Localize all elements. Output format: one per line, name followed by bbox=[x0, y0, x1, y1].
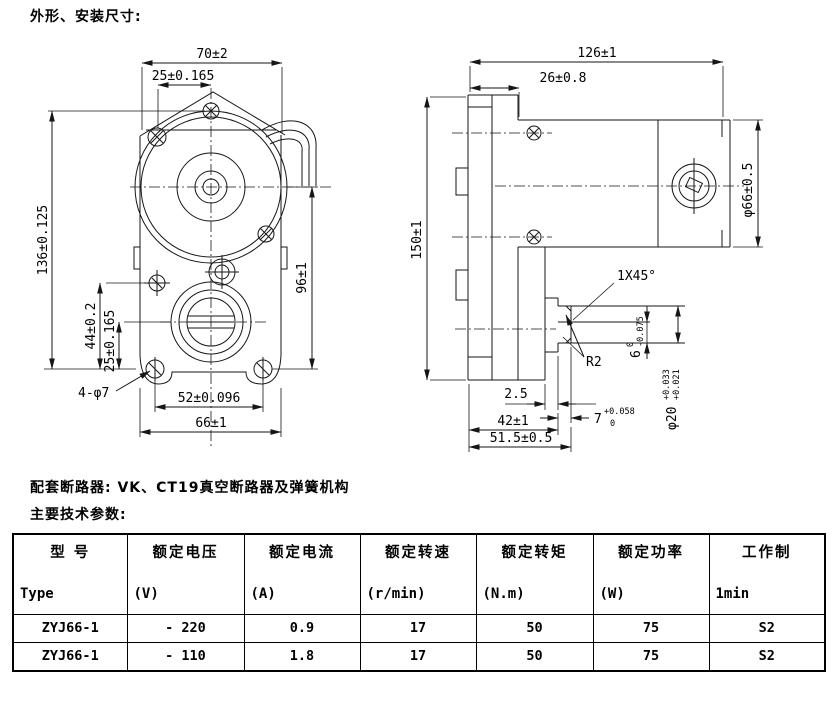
header-voltage: 额定电压 (V) bbox=[127, 534, 244, 615]
header-current-cn: 额定电流 bbox=[245, 535, 360, 562]
row2-current: 1.8 bbox=[244, 643, 360, 672]
dim-height-overall-side: 150±1 bbox=[410, 220, 425, 259]
row1-power: 75 bbox=[593, 615, 709, 643]
dim-key-width-tol-lower: 0 bbox=[610, 419, 615, 429]
dim-total-length: 51.5±0.5 bbox=[490, 431, 553, 446]
dim-key-height-group: 6 0 -0.075 bbox=[626, 316, 646, 358]
row2-torque: 50 bbox=[476, 643, 593, 672]
dim-key-height: 6 bbox=[629, 350, 644, 358]
dim-length-overall: 126±1 bbox=[577, 46, 616, 61]
dim-flange-thickness: 26±0.8 bbox=[540, 71, 587, 86]
dim-height-overall-front: 136±0.125 bbox=[36, 205, 51, 275]
side-view-drawing: 126±1 26±0.8 150±1 φ66±0.5 1X45° R2 bbox=[410, 46, 763, 452]
row2-voltage: - 110 bbox=[127, 643, 244, 672]
row1-current: 0.9 bbox=[244, 615, 360, 643]
header-type: 型 号 Type bbox=[13, 534, 127, 615]
dim-step: 2.5 bbox=[504, 387, 527, 402]
row1-speed: 17 bbox=[360, 615, 476, 643]
row2-duty: S2 bbox=[709, 643, 825, 672]
header-power-cn: 额定功率 bbox=[594, 535, 709, 562]
side-centerlines bbox=[452, 133, 744, 329]
front-dimensions: 70±2 25±0.165 136±0.125 96±1 44±0.2 25±0… bbox=[36, 47, 318, 437]
header-power: 额定功率 (W) bbox=[593, 534, 709, 615]
breaker-note: 配套断路器: VK、CT19真空断路器及弹簧机构 bbox=[30, 477, 349, 497]
drawing-sheet: 外形、安装尺寸: bbox=[0, 0, 837, 710]
header-duty: 工作制 1min bbox=[709, 534, 825, 615]
dim-body-diameter: φ66±0.5 bbox=[741, 163, 756, 218]
header-duty-cn: 工作制 bbox=[710, 535, 825, 562]
front-view-drawing: 70±2 25±0.165 136±0.125 96±1 44±0.2 25±0… bbox=[36, 47, 332, 448]
header-current: 额定电流 (A) bbox=[244, 534, 360, 615]
header-speed-en: (r/min) bbox=[361, 562, 476, 614]
row1-type: ZYJ66-1 bbox=[13, 615, 127, 643]
header-voltage-cn: 额定电压 bbox=[128, 535, 244, 562]
dim-shaft-tol-lower: +0.021 bbox=[672, 369, 682, 400]
label-chamfer: 1X45° bbox=[617, 269, 656, 284]
params-label: 主要技术参数: bbox=[30, 504, 127, 524]
row1-duty: S2 bbox=[709, 615, 825, 643]
lead-wires bbox=[262, 121, 316, 186]
header-speed: 额定转速 (r/min) bbox=[360, 534, 476, 615]
dim-width-bottom: 66±1 bbox=[195, 416, 226, 431]
header-type-cn: 型 号 bbox=[14, 535, 127, 562]
page-title: 外形、安装尺寸: bbox=[30, 6, 142, 26]
mounting-plate-side bbox=[456, 95, 545, 380]
dim-hole-pitch-bottom: 52±0.096 bbox=[178, 391, 241, 406]
dim-key-width-tol-upper: +0.058 bbox=[604, 407, 635, 417]
header-voltage-en: (V) bbox=[128, 562, 244, 614]
dim-width-top: 70±2 bbox=[196, 47, 227, 62]
header-torque-cn: 额定转矩 bbox=[477, 535, 593, 562]
dim-shaft-diameter-group: φ20 +0.033 +0.021 bbox=[662, 369, 682, 430]
header-torque-en: (N.m) bbox=[477, 562, 593, 614]
row2-speed: 17 bbox=[360, 643, 476, 672]
header-duty-en: 1min bbox=[710, 562, 825, 614]
table-row: ZYJ66-1 - 220 0.9 17 50 75 S2 bbox=[13, 615, 825, 643]
dim-hole-pitch-top: 25±0.165 bbox=[152, 69, 215, 84]
header-torque: 额定转矩 (N.m) bbox=[476, 534, 593, 615]
row1-torque: 50 bbox=[476, 615, 593, 643]
header-speed-cn: 额定转速 bbox=[361, 535, 476, 562]
label-mount-holes: 4-φ7 bbox=[78, 386, 109, 401]
dim-shaft-tol-upper: +0.033 bbox=[662, 369, 672, 400]
dim-key-height-tol-upper: 0 bbox=[626, 342, 636, 347]
dim-shaft-diameter: φ20 bbox=[665, 407, 680, 430]
dimension-drawings: 70±2 25±0.165 136±0.125 96±1 44±0.2 25±0… bbox=[0, 28, 837, 468]
dim-key-width: 7 bbox=[594, 412, 602, 427]
row2-type: ZYJ66-1 bbox=[13, 643, 127, 672]
dim-height-right: 96±1 bbox=[295, 262, 310, 293]
row2-power: 75 bbox=[593, 643, 709, 672]
side-dimensions: 126±1 26±0.8 150±1 φ66±0.5 1X45° R2 bbox=[410, 46, 763, 452]
label-fillet: R2 bbox=[586, 355, 602, 370]
spec-table: 型 号 Type 额定电压 (V) 额定电流 (A) 额定转速 (r/min) … bbox=[12, 533, 826, 672]
dim-shaft-length: 42±1 bbox=[497, 414, 528, 429]
motor-body-front bbox=[134, 92, 287, 384]
header-power-en: (W) bbox=[594, 562, 709, 614]
gearbox-shaft-side bbox=[545, 247, 685, 380]
table-row: ZYJ66-1 - 110 1.8 17 50 75 S2 bbox=[13, 643, 825, 672]
header-row: 型 号 Type 额定电压 (V) 额定电流 (A) 额定转速 (r/min) … bbox=[13, 534, 825, 615]
dim-pitch-25-bottom: 25±0.165 bbox=[103, 310, 118, 373]
dim-key-height-tol-lower: -0.075 bbox=[636, 316, 646, 347]
header-current-en: (A) bbox=[245, 562, 360, 614]
header-type-en: Type bbox=[14, 562, 127, 614]
row1-voltage: - 220 bbox=[127, 615, 244, 643]
motor-body-side bbox=[518, 120, 730, 247]
dim-pitch-44: 44±0.2 bbox=[84, 303, 99, 350]
